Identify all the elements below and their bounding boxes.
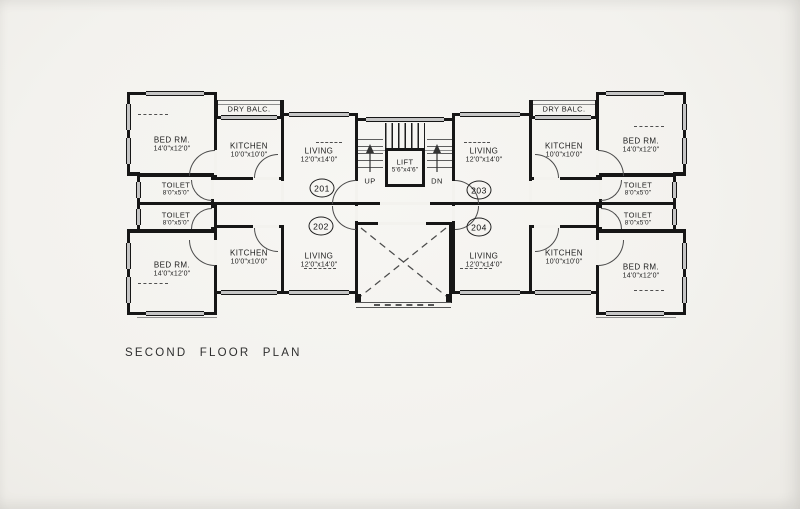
kitchen-204-label: KITCHEN 10'0"x10'0" [545,249,583,268]
window [682,104,687,130]
room-dims: 14'0"x12'0" [623,147,660,156]
room-dims: 10'0"x10'0" [545,259,583,268]
window [460,112,520,117]
room-dims: 14'0"x12'0" [154,146,191,155]
shaft-bottom-dashed-rail [374,304,434,306]
unit-number-204: 204 [467,218,492,237]
window [672,209,677,225]
wardrobe-dash-line [634,126,664,127]
room-dims: 8'0"x5'0" [624,190,653,198]
toilet-201-label: TOILET 8'0"x5'0" [162,180,191,198]
room-name: LIVING [466,252,503,262]
room-name: DRY BALC. [228,104,271,113]
window [535,115,591,120]
shaft-cross-lines [360,227,447,297]
room-dims: 14'0"x12'0" [154,271,191,280]
room-name: KITCHEN [545,249,583,259]
room-name: LIVING [301,147,338,157]
window [126,138,131,164]
room-name: LIFT [392,157,419,166]
room-name: TOILET [624,210,653,219]
room-name: LIVING [466,147,503,157]
direction-label: UP [364,176,375,185]
staircase-treads [385,123,425,149]
bedroom-204-label: BED RM. 14'0"x12'0" [623,263,660,282]
room-name: KITCHEN [230,142,268,152]
stair-down-label: DN [431,176,443,185]
room-name: DRY BALC. [543,104,586,113]
unit-number-202: 202 [309,217,334,236]
direction-label: DN [431,176,443,185]
kitchen-202-label: KITCHEN 10'0"x10'0" [230,249,268,268]
projection-dash-line [316,142,342,143]
window [221,115,277,120]
projection-dash-line [464,142,490,143]
kitchen-203-label: KITCHEN 10'0"x10'0" [545,142,583,161]
unit-number-text: 204 [471,222,487,232]
window [146,91,204,96]
window [366,117,444,122]
room-dims: 14'0"x12'0" [623,273,660,282]
window [221,290,277,295]
window [672,182,677,198]
door-opening [380,202,430,205]
wall-stub [127,229,140,233]
room-name: TOILET [624,180,653,189]
stair-up-label: UP [364,176,375,185]
unit-number-text: 203 [471,185,487,195]
room-dims: 8'0"x5'0" [624,220,653,228]
room-dims: 12'0"x14'0" [301,262,338,271]
window [460,290,520,295]
room-dims: 12'0"x14'0" [466,157,503,166]
toilet-204-label: TOILET 8'0"x5'0" [624,210,653,228]
unit-number-text: 202 [313,221,329,231]
sill-line [596,317,676,318]
door-opening [281,181,284,202]
window [606,91,664,96]
unit-number-203: 203 [467,181,492,200]
lift-label: LIFT 5'6"x4'6" [392,157,419,175]
kitchen-201-label: KITCHEN 10'0"x10'0" [230,142,268,161]
living-202-label: LIVING 12'0"x14'0" [301,252,338,271]
window [682,277,687,303]
room-dims: 8'0"x5'0" [162,190,191,198]
wardrobe-dash-line [138,283,168,284]
room-name: KITCHEN [230,249,268,259]
sill-line [137,317,217,318]
bedroom-202-label: BED RM. 14'0"x12'0" [154,261,191,280]
door-opening [529,181,532,202]
dry-balcony-right-label: DRY BALC. [543,104,586,113]
window [535,290,591,295]
window [289,112,349,117]
wall-stub [127,172,140,176]
wall-stub [673,229,686,233]
window [126,104,131,130]
toilet-202-label: TOILET 8'0"x5'0" [162,210,191,228]
room-dims: 10'0"x10'0" [230,259,268,268]
room-dims: 10'0"x10'0" [545,152,583,161]
living-203-label: LIVING 12'0"x14'0" [466,147,503,166]
room-dims: 8'0"x5'0" [162,220,191,228]
room-name: BED RM. [623,263,660,273]
room-name: KITCHEN [545,142,583,152]
window [136,209,141,225]
wardrobe-dash-line [634,290,664,291]
unit-number-201: 201 [310,179,335,198]
room-name: LIVING [301,252,338,262]
room-name: BED RM. [623,137,660,147]
toilet-203-label: TOILET 8'0"x5'0" [624,180,653,198]
room-dims: 5'6"x4'6" [392,167,419,175]
window [146,311,204,316]
wardrobe-dash-line [138,114,168,115]
room-name: BED RM. [154,136,191,146]
down-arrow-icon [431,143,443,173]
room-dims: 12'0"x14'0" [466,262,503,271]
room-dims: 10'0"x10'0" [230,152,268,161]
bedroom-201-label: BED RM. 14'0"x12'0" [154,136,191,155]
room-name: TOILET [162,180,191,189]
room-name: BED RM. [154,261,191,271]
window [136,182,141,198]
window [289,290,349,295]
wall-stub [673,172,686,176]
room-dims: 12'0"x14'0" [301,157,338,166]
window [126,277,131,303]
window [682,138,687,164]
shaft-top-opening [378,222,426,225]
up-arrow-icon [364,143,376,173]
window [682,243,687,269]
bedroom-203-label: BED RM. 14'0"x12'0" [623,137,660,156]
unit-number-text: 201 [314,183,330,193]
window [126,243,131,269]
room-name: TOILET [162,210,191,219]
drawing-title: SECOND FLOOR PLAN [125,347,302,359]
window [606,311,664,316]
dry-balcony-left-label: DRY BALC. [228,104,271,113]
floor-plan-sheet: BED RM. 14'0"x12'0" DRY BALC. KITCHEN 10… [0,0,800,509]
living-204-label: LIVING 12'0"x14'0" [466,252,503,271]
living-201-label: LIVING 12'0"x14'0" [301,147,338,166]
